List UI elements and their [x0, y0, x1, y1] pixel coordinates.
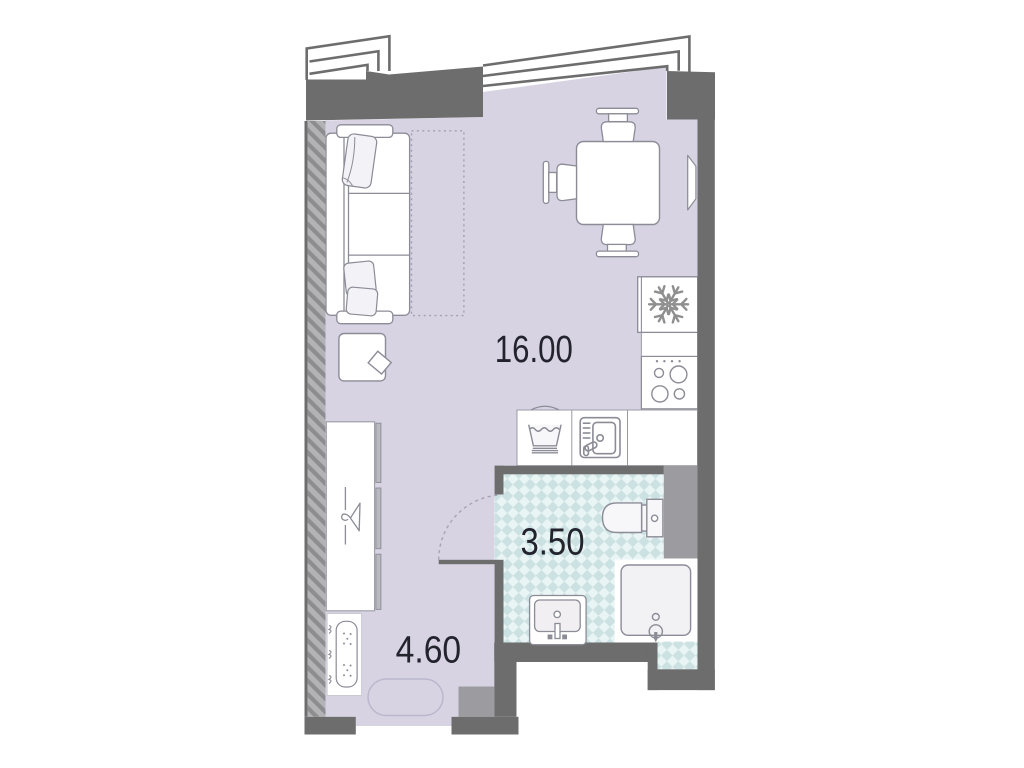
svg-text:3.50: 3.50	[521, 522, 585, 564]
svg-text:4.60: 4.60	[396, 630, 462, 672]
svg-text:16.00: 16.00	[495, 329, 573, 371]
